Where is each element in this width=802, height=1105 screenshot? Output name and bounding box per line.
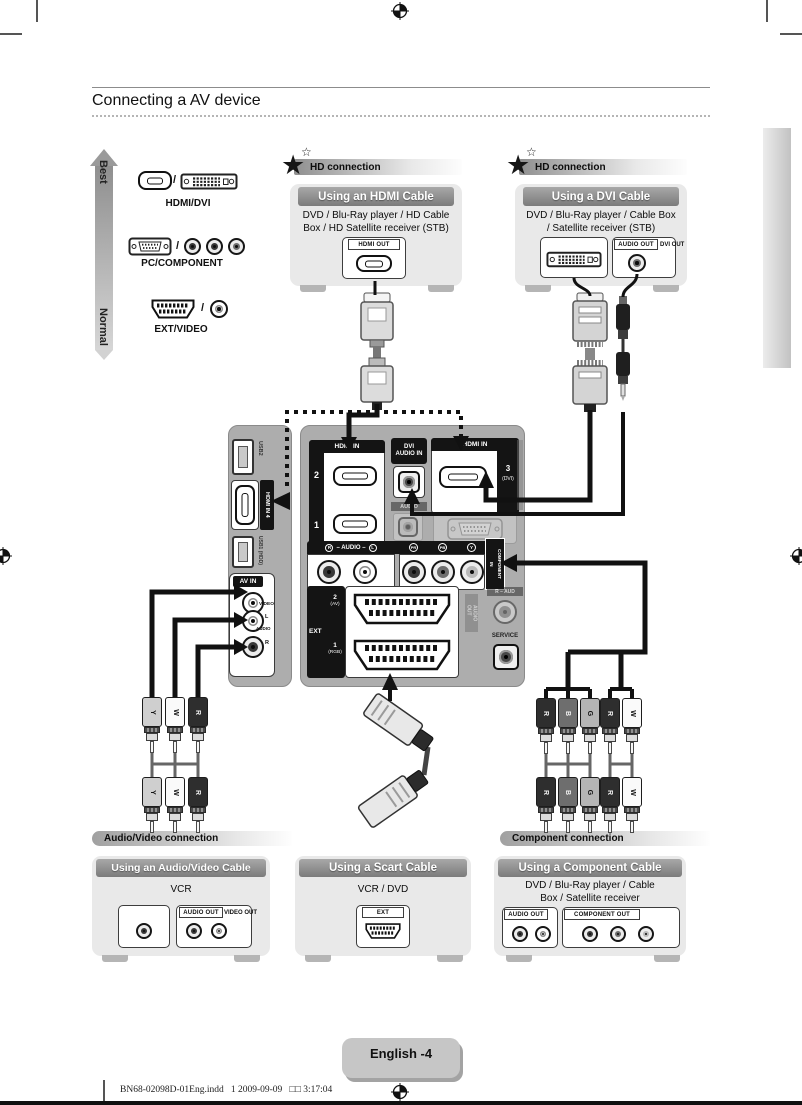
audio-r-label: R [265,640,269,646]
dvi-cable-plugs [568,292,612,412]
scart-card-title: Using a Scart Cable [299,859,467,877]
scart-cable-plugs [340,693,450,833]
rca-plug-pr: R [536,777,556,833]
ext-strip: EXT 2 (AV) 1 (RGB) [307,586,345,678]
hdmi-card-devices: DVD / Blu-Ray player / HD Cable Box / HD… [292,209,460,235]
component-card-title: Using a Component Cable [498,859,682,877]
ext-label: EXT [309,628,322,635]
y-badge: Y [467,543,476,552]
card-foot [654,955,680,962]
page-number-badge: English -4 [342,1038,460,1078]
dvi-audio-in-label: DVI AUDIO IN [391,438,427,464]
audio-l-jack-icon [353,560,377,584]
rca-label: W [628,710,635,717]
rca-label: R [195,789,202,794]
rca-label: R [195,709,202,714]
rca-plug-audio-r: R [600,698,620,754]
ext2-sub: (AV) [325,602,345,607]
slash-separator: / [201,302,204,314]
hdmi-card-title: Using an HDMI Cable [298,187,454,206]
dvi-card-title: Using a DVI Cable [523,187,679,206]
slash-separator: / [176,240,179,252]
audio-lr-label: – AUDIO – [336,545,365,551]
audio-out-label: AUDIO OUT [504,909,548,920]
card-foot [300,285,326,292]
component-jack-icon [206,238,223,255]
rca-plug-y: G [580,698,600,754]
ext-label: EXT [362,907,404,918]
title-dotted-rule [92,115,710,117]
audio-r-jack [242,636,264,658]
legend-label-ext-video: EXT/VIDEO [121,324,241,335]
crop-mark [780,33,802,35]
audio-label: AUDIO [256,626,271,631]
page-number-label: English -4 [370,1046,432,1078]
tv-side-panel: USB2 HDMI IN 4 USB1 (HDD) AV IN VIDEO L … [228,425,292,687]
pc-audio-jack-icon [398,517,418,537]
audio-faded-label: AUDIO [391,502,427,511]
audio-out-jack-icon [628,254,646,272]
av-card-devices: VCR [94,883,268,896]
hdmi4-label: HDMI IN 4 [260,480,274,530]
tv-back-panel: HDMI IN 2 1 DVI AUDIO IN HDMI IN 3 (DVI)… [300,425,525,687]
rca-label: Y [148,790,155,795]
usb2-label: USB2 [257,441,263,456]
y-jack-icon [460,560,484,584]
component-out-jack-icon [638,926,654,942]
dvi-card-devices: DVD / Blu-Ray player / Cable Box / Satel… [517,209,685,235]
hdmi3-port-icon [439,466,487,488]
component-connection-label: Component connection [500,833,624,844]
video-label: VIDEO [259,602,274,607]
rca-plug-audio-l: W [165,777,185,833]
av-connection-header: Audio/Video connection [92,831,292,846]
hdmi2-port-icon [333,466,377,486]
component-connection-header: Component connection [500,831,710,846]
service-jack-icon [493,644,519,670]
print-info-line: BN68-02098D-01Eng.indd 1 2009-09-09 □□ 3… [120,1085,332,1095]
component-in-label: COMPONENT IN [485,538,505,590]
title-rule [92,87,710,88]
crop-mark [103,1080,105,1101]
rca-label: W [171,789,178,796]
audio-out-label: AUDIO OUT [614,239,658,250]
star-outline-icon: ☆ [526,146,537,158]
rca-label: B [565,789,572,794]
ext2-number: 2 [327,594,343,601]
pc-audio-jack-box [393,513,423,541]
page-title: Connecting a AV device [92,92,261,110]
rca-plug-video: Y [142,777,162,833]
pb-badge: PB [438,543,447,552]
card-foot [437,955,463,962]
crop-mark [766,0,768,22]
component-jack-icon [184,238,201,255]
card-foot [305,955,331,962]
rca-plug-audio-l: W [165,697,185,753]
rca-plug-audio-l: W [622,698,642,754]
hdmi3-header: HDMI IN [431,438,519,451]
ext1-sub: (RGB) [324,650,346,655]
av-connection-label: Audio/Video connection [92,833,218,844]
card-foot [102,955,128,962]
registration-mark-icon [391,1083,409,1101]
component-audio-header: R – AUDIO – L PR PB Y [307,541,485,554]
card-foot [525,285,551,292]
ext-scart-port-icon [361,922,405,940]
hd-connection-label: HD connection [535,162,606,173]
slash-separator: / [173,174,176,186]
rca-label: R [543,789,550,794]
rca-plug-audio-l: W [622,777,642,833]
card-foot [506,955,532,962]
component-out-jack-icon [610,926,626,942]
rca-label: B [565,710,572,715]
page-edge-shading [763,128,791,368]
service-label: SERVICE [487,633,523,639]
rca-plug-video: Y [142,697,162,753]
audio-cable-plugs [612,296,634,418]
audio-out-label: AUDIO OUT [179,907,223,918]
component-card-devices: DVD / Blu-Ray player / Cable Box / Satel… [496,879,684,905]
r-audio-partial-label: R – AUD [487,587,523,596]
hdmi-port2-number: 2 [309,468,324,482]
rca-label: W [171,709,178,716]
quality-arrow-tail [95,350,113,360]
rca-plug-audio-r: R [188,777,208,833]
legend-label-hdmi-dvi: HDMI/DVI [128,198,248,209]
audio-out-label: AUDIO OUT [465,594,478,632]
rca-label: G [586,789,593,794]
scart-connector-icon [150,298,196,320]
video-out-jack-icon [211,923,227,939]
rca-plug-pb: B [558,777,578,833]
card-foot [653,285,679,292]
ext1-number: 1 [327,642,343,649]
rca-plug-audio-r: R [600,777,620,833]
pr-badge: PR [409,543,418,552]
rca-label: Y [148,710,155,715]
rca-label: R [543,710,550,715]
rca-label: G [586,710,593,715]
component-out-label: COMPONENT OUT [564,909,640,920]
usb1-port-icon [232,536,254,568]
card-foot [428,285,454,292]
hdmi-port3-sub: (DVI) [497,474,519,484]
audio-out-r-jack [493,600,517,624]
manual-page: Connecting a AV device Best Normal / HDM… [0,0,802,1105]
rca-plug-pr: R [536,698,556,754]
star-outline-icon: ☆ [301,146,312,158]
usb1-label: USB1 (HDD) [257,536,263,565]
hdmi-port3-number: 3 [497,462,519,474]
audio-r-badge: R [325,544,333,552]
hdmi1-port-icon [333,514,377,534]
usb2-port-icon [232,439,254,475]
audio-r-jack-icon [317,560,341,584]
registration-mark-icon [790,547,802,565]
dvi-audio-jack-icon [398,471,420,493]
card-foot [234,955,260,962]
video-jack-icon [210,300,228,318]
hdmi4-port-icon [235,485,255,525]
vcr-jack-icon [136,923,152,939]
quality-normal-label: Normal [97,308,109,346]
rca-plug-pb: B [558,698,578,754]
crop-mark [0,33,22,35]
dvi-out-label: DVI OUT [660,242,684,248]
registration-mark-icon [391,2,409,20]
hdmi-out-port-icon [356,255,392,272]
footer-bar [0,1101,802,1105]
pb-jack-icon [431,560,455,584]
hdmi-in-header: HDMI IN [309,440,385,453]
crop-mark [36,0,38,22]
vga-connector-icon [128,236,172,257]
hdmi-out-label: HDMI OUT [348,239,400,250]
hdmi-port1-number: 1 [309,518,324,532]
audio-out-jack-icon [186,923,202,939]
registration-mark-icon [0,547,12,565]
scart-port-1-icon [351,638,453,672]
dvi-out-port-icon [546,250,602,269]
dvi-connector-icon [180,172,238,191]
quality-best-label: Best [97,160,109,184]
rca-label: W [628,789,635,796]
audio-l-label: L [265,614,268,620]
pr-jack-icon [402,560,426,584]
component-jack-icon [228,238,245,255]
audio-l-badge: L [369,544,377,552]
hd-connection-label: HD connection [310,162,381,173]
video-out-label: VIDEO OUT [224,910,257,916]
rca-label: R [607,789,614,794]
av-card-title: Using an Audio/Video Cable [96,859,266,877]
audio-out-l-jack-icon [535,926,551,942]
rca-plug-y: G [580,777,600,833]
rca-label: R [607,710,614,715]
scart-port-2-icon [351,592,453,626]
hdmi-cable-plugs [357,292,397,410]
audio-out-r-jack-icon [512,926,528,942]
scart-card-devices: VCR / DVD [297,883,469,896]
legend-label-pc-component: PC/COMPONENT [112,258,252,269]
component-out-jack-icon [582,926,598,942]
av-in-label: AV IN [233,576,263,587]
rca-plug-audio-r: R [188,697,208,753]
hdmi-connector-icon [138,171,172,190]
